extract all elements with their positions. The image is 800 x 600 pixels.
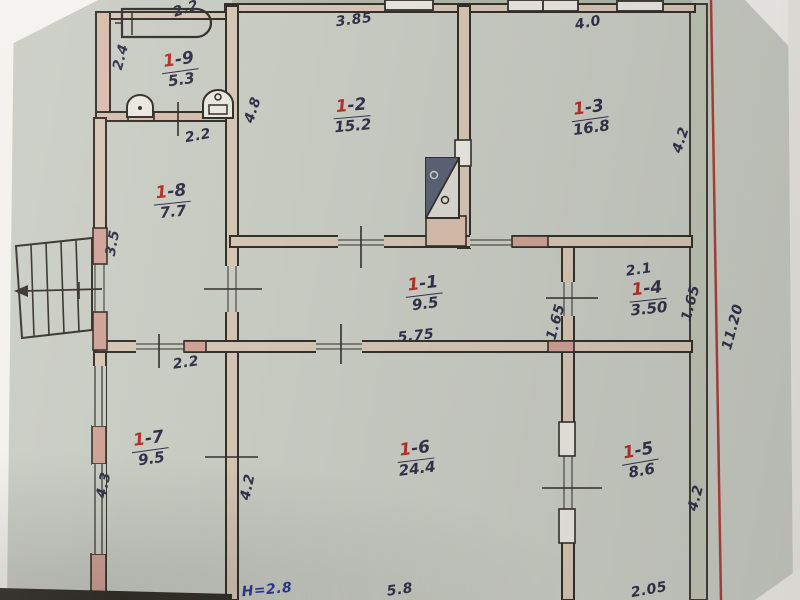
stove-icon — [426, 158, 466, 246]
red-reference-line — [711, 0, 721, 600]
washbasin-icon — [203, 90, 233, 118]
room-label-1-1: 1-1 9.5 — [404, 274, 445, 315]
room-label-1-9: 1-9 5.3 — [159, 49, 200, 90]
photo-edges — [0, 0, 800, 600]
room-label-1-4: 1-4 3.50 — [628, 279, 669, 319]
room-label-1-2: 1-2 15.2 — [332, 96, 372, 136]
room-label-1-8: 1-8 7.7 — [152, 182, 192, 222]
floorplan-drawing — [0, 0, 800, 600]
floor-plan-photo: 1-9 5.3 1-8 7.7 1-2 15.2 1-3 16.8 1-1 9.… — [0, 0, 800, 600]
toilet-icon — [127, 95, 153, 117]
top-wall-windows — [385, 0, 663, 11]
room-area: 15.2 — [334, 117, 372, 136]
room-label-1-7: 1-7 9.5 — [129, 428, 170, 469]
door-openings — [92, 235, 575, 509]
wall-piers-pink — [91, 228, 574, 598]
room-label-1-5: 1-5 8.6 — [619, 440, 662, 482]
staircase-symbol — [14, 238, 102, 338]
room-label-1-3: 1-3 16.8 — [569, 97, 611, 138]
walls — [94, 4, 695, 600]
door-ticks — [128, 102, 602, 488]
room-label-1-6: 1-6 24.4 — [395, 439, 436, 480]
